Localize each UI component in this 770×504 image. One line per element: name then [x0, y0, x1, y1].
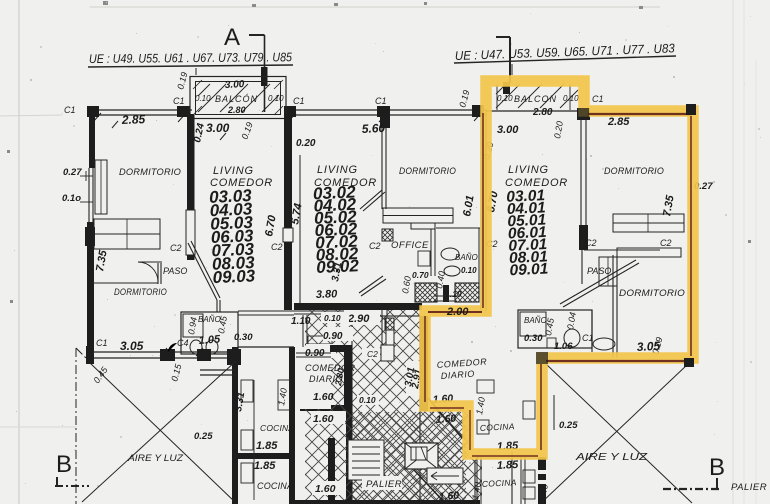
svg-text:DORMITORIO: DORMITORIO [399, 166, 456, 177]
svg-text:1.85: 1.85 [256, 440, 278, 452]
svg-text:C4: C4 [177, 338, 189, 348]
svg-text:1.10: 1.10 [445, 289, 462, 299]
svg-text:LIVING: LIVING [317, 164, 358, 176]
svg-text:1.60: 1.60 [313, 413, 334, 425]
svg-text:LIVING: LIVING [213, 165, 254, 177]
svg-text:0.30: 0.30 [524, 333, 543, 344]
svg-text:0.10: 0.10 [563, 94, 579, 103]
svg-text:C1: C1 [293, 96, 305, 106]
svg-text:AIRE Y LUZ: AIRE Y LUZ [127, 453, 184, 464]
svg-text:COCINA: COCINA [257, 481, 293, 491]
svg-text:C1: C1 [592, 94, 604, 104]
svg-text:UE : U49. U55. U61 . U67. U73.: UE : U49. U55. U61 . U67. U73. U79 . U85 [89, 50, 292, 66]
svg-text:0.25: 0.25 [559, 420, 578, 431]
svg-text:1.60: 1.60 [313, 391, 334, 403]
svg-text:1.60: 1.60 [315, 483, 336, 495]
svg-text:AIRE Y LUZ: AIRE Y LUZ [575, 452, 648, 463]
svg-text:0.20: 0.20 [296, 138, 316, 149]
svg-text:C2: C2 [369, 241, 381, 251]
svg-text:PALIER: PALIER [731, 482, 767, 493]
svg-text:0.10: 0.10 [461, 266, 477, 275]
svg-text:1.85: 1.85 [497, 459, 520, 472]
svg-text:OFFICE: OFFICE [391, 240, 429, 251]
svg-text:0.27: 0.27 [63, 167, 82, 178]
svg-text:COCINA: COCINA [480, 421, 515, 433]
svg-text:3.00: 3.00 [206, 121, 230, 135]
svg-text:0.90: 0.90 [305, 348, 325, 359]
svg-text:PASO: PASO [163, 266, 187, 276]
svg-text:C2: C2 [271, 242, 283, 252]
svg-text:0.10: 0.10 [195, 94, 211, 103]
svg-text:0.10: 0.10 [497, 94, 513, 103]
svg-text:0.10: 0.10 [324, 313, 341, 323]
svg-text:C2: C2 [170, 243, 182, 253]
svg-text:0.30: 0.30 [234, 332, 253, 343]
svg-text:0.10: 0.10 [359, 395, 376, 405]
svg-text:DORMITORIO: DORMITORIO [604, 166, 664, 177]
svg-text:1.60: 1.60 [438, 490, 459, 503]
svg-text:3.05: 3.05 [636, 339, 660, 354]
svg-text:2.80: 2.80 [532, 107, 553, 118]
svg-text:1.85: 1.85 [254, 460, 276, 472]
svg-text:3.00: 3.00 [497, 124, 519, 136]
svg-text:09.01: 09.01 [509, 261, 549, 280]
svg-text:BAÑO: BAÑO [524, 316, 547, 325]
svg-text:0.70: 0.70 [412, 270, 429, 280]
svg-text:B: B [56, 451, 72, 478]
svg-text:LIVING: LIVING [508, 164, 549, 176]
svg-text:2.90: 2.90 [347, 313, 370, 325]
svg-text:PASO: PASO [587, 266, 611, 276]
svg-text:C1: C1 [96, 338, 108, 348]
svg-text:C2: C2 [585, 238, 597, 248]
svg-text:C2: C2 [660, 238, 672, 248]
svg-text:3.05: 3.05 [120, 339, 144, 353]
svg-text:5.60: 5.60 [361, 121, 385, 136]
svg-text:DORMITORIO: DORMITORIO [114, 287, 167, 297]
svg-text:0.25: 0.25 [194, 431, 213, 442]
svg-text:C2: C2 [367, 349, 378, 359]
svg-text:B: B [709, 454, 725, 481]
svg-text:0.10: 0.10 [268, 94, 284, 103]
svg-text:BAÑO: BAÑO [455, 253, 478, 262]
svg-text:C1: C1 [173, 96, 185, 106]
svg-text:C1: C1 [64, 105, 76, 115]
svg-text:1.06: 1.06 [554, 341, 573, 352]
svg-text:A: A [224, 24, 240, 51]
svg-text:1.60: 1.60 [435, 413, 456, 426]
svg-text:3.00: 3.00 [225, 79, 245, 91]
svg-text:COCINA: COCINA [482, 477, 517, 489]
svg-text:2.85: 2.85 [121, 112, 146, 127]
svg-text:2.85: 2.85 [607, 116, 630, 128]
svg-text:BALCÓN: BALCÓN [215, 94, 258, 104]
svg-text:09.03: 09.03 [212, 266, 256, 287]
svg-text:BALCON: BALCON [514, 94, 557, 104]
svg-text:DORMITORIO: DORMITORIO [619, 288, 685, 298]
svg-text:2.00: 2.00 [446, 306, 469, 318]
svg-text:C1: C1 [582, 333, 594, 343]
svg-text:PALIER: PALIER [366, 479, 402, 490]
svg-text:3.80: 3.80 [316, 288, 339, 301]
svg-text:DORMITORIO: DORMITORIO [119, 167, 181, 178]
svg-text:C1: C1 [375, 96, 387, 106]
svg-text:0.90: 0.90 [323, 331, 343, 342]
svg-text:COCINA: COCINA [260, 423, 294, 433]
svg-text:2.80: 2.80 [227, 105, 246, 115]
svg-text:COMEDOR: COMEDOR [305, 363, 356, 373]
svg-text:0.1o: 0.1o [62, 193, 81, 204]
svg-text:1.05: 1.05 [198, 333, 221, 347]
svg-text:1.10: 1.10 [291, 316, 311, 327]
